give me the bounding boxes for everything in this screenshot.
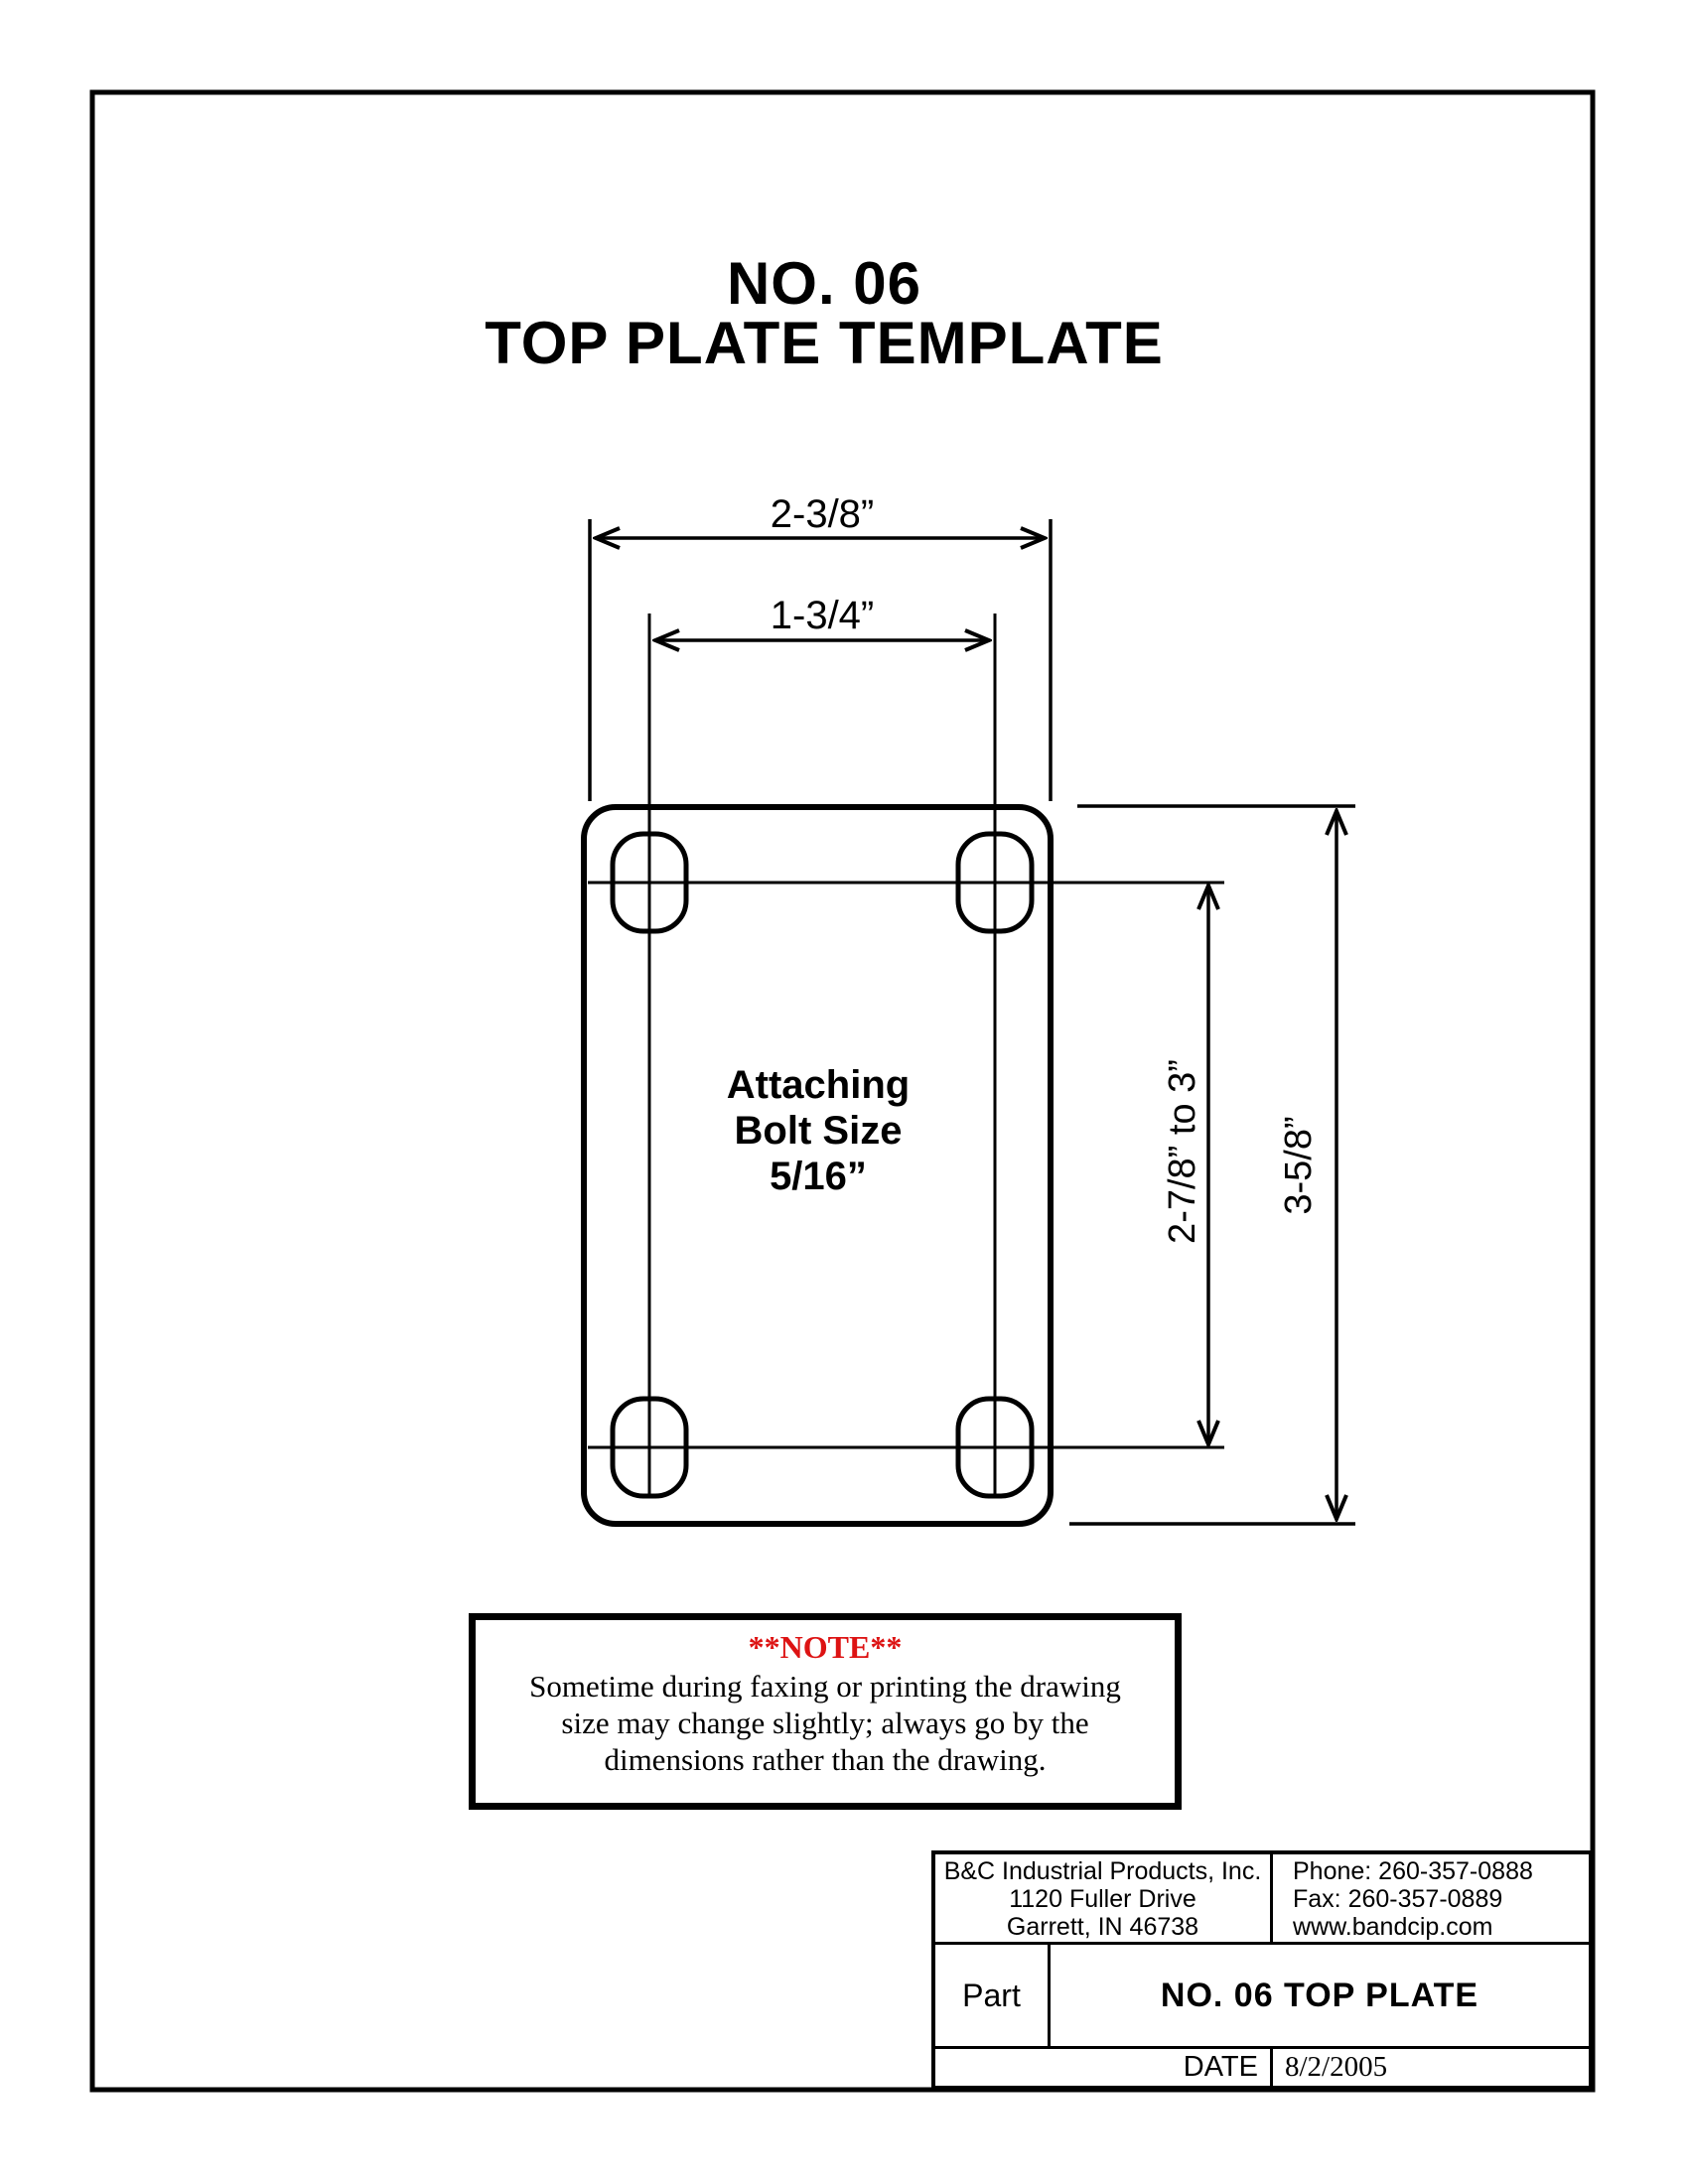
attaching-bolt-size-line3: 5/16” [727,1154,910,1199]
date-label: DATE [935,2049,1273,2086]
company-address-line2: Garrett, IN 46738 [935,1913,1270,1941]
sheet-title: NO. 06 TOP PLATE TEMPLATE [485,254,1164,373]
sheet-title-number: NO. 06 [485,254,1164,314]
company-fax: Fax: 260-357-0889 [1293,1885,1589,1913]
title-block-row-part: Part NO. 06 TOP PLATE [935,1945,1589,2049]
part-value: NO. 06 TOP PLATE [1051,1945,1589,2046]
attaching-bolt-size-line2: Bolt Size [727,1108,910,1154]
dim-label-plate-width: 2-3/8” [771,493,875,535]
company-address-line1: 1120 Fuller Drive [935,1885,1270,1913]
attaching-bolt-size-line1: Attaching [727,1062,910,1108]
note-body: Sometime during faxing or printing the d… [476,1668,1175,1778]
company-website: www.bandcip.com [1293,1913,1589,1941]
dim-label-bolt-spacing-height: 2-7/8” to 3” [1162,1059,1203,1244]
note-heading: **NOTE** [476,1628,1175,1666]
title-block-row-company: B&C Industrial Products, Inc. 1120 Fulle… [935,1854,1589,1945]
contact-info-cell: Phone: 260-357-0888 Fax: 260-357-0889 ww… [1273,1854,1589,1942]
title-block-row-date: DATE 8/2/2005 [935,2049,1589,2086]
title-block: B&C Industrial Products, Inc. 1120 Fulle… [931,1850,1593,2090]
note-body-line2: size may change slightly; always go by t… [476,1705,1175,1741]
company-info-cell: B&C Industrial Products, Inc. 1120 Fulle… [935,1854,1273,1942]
attaching-bolt-size-label: Attaching Bolt Size 5/16” [727,1062,910,1199]
dim-label-bolt-spacing-width: 1-3/4” [771,595,875,636]
note-body-line1: Sometime during faxing or printing the d… [476,1668,1175,1705]
company-name: B&C Industrial Products, Inc. [935,1857,1270,1885]
drawing-sheet: NO. 06 TOP PLATE TEMPLATE 2-3/8” 1-3/4” … [0,0,1688,2184]
dim-label-plate-height: 3-5/8” [1278,1116,1320,1214]
note-body-line3: dimensions rather than the drawing. [476,1741,1175,1778]
part-label: Part [935,1945,1051,2046]
note-box: **NOTE** Sometime during faxing or print… [469,1613,1182,1810]
company-phone: Phone: 260-357-0888 [1293,1857,1589,1885]
sheet-title-name: TOP PLATE TEMPLATE [485,314,1164,373]
date-value: 8/2/2005 [1273,2049,1589,2086]
